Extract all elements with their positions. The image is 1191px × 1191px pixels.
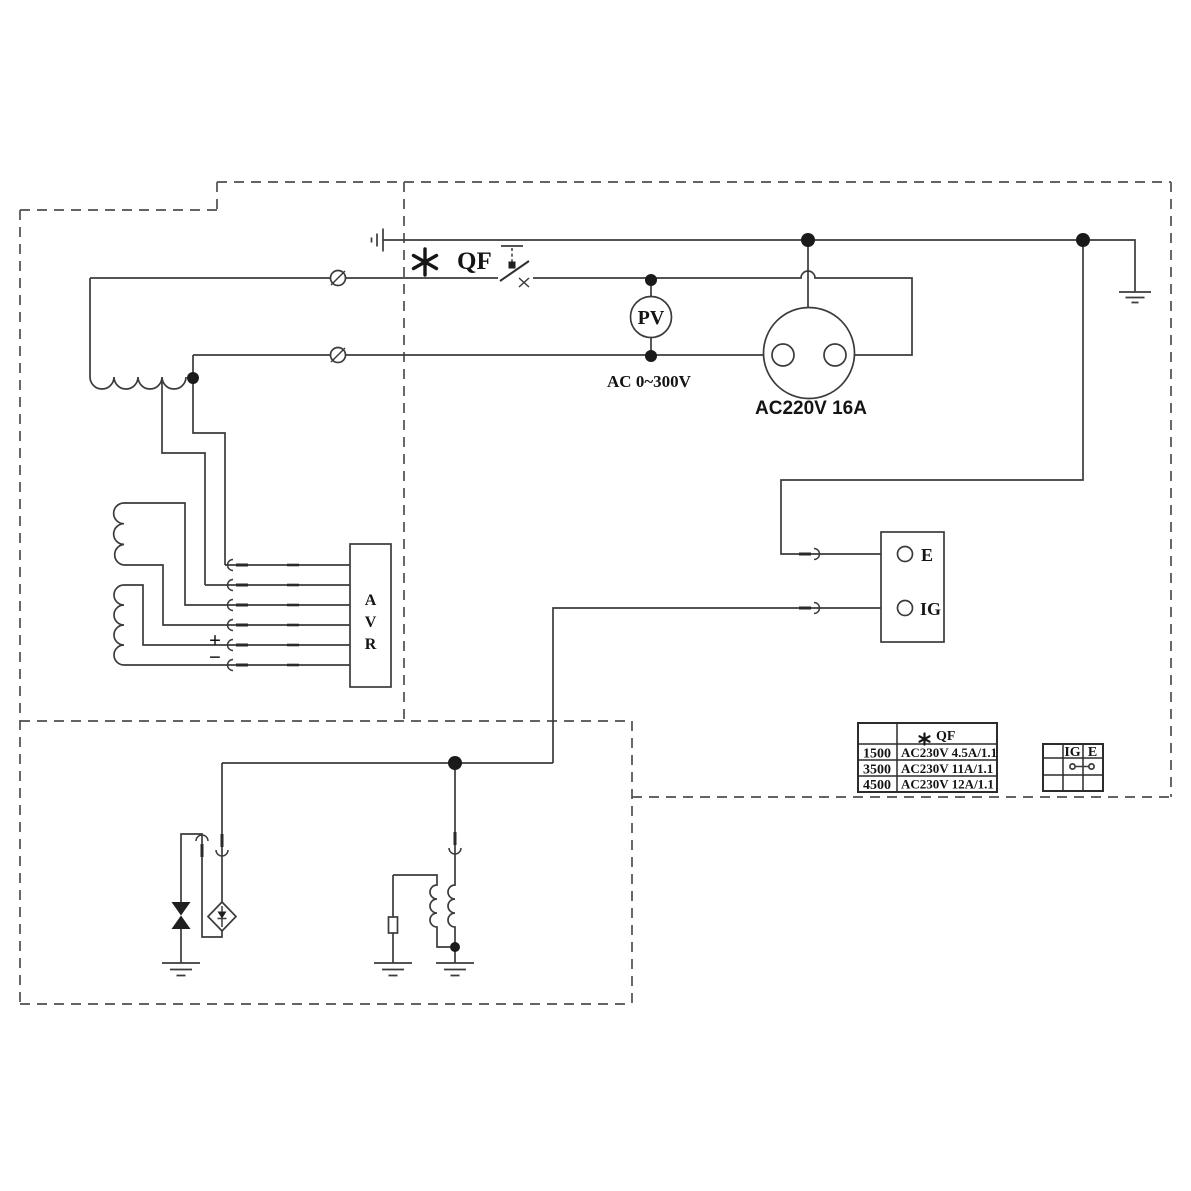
connector-icon (196, 549, 820, 858)
qf-table-spec: AC230V 4.5A/1.1 (901, 745, 997, 760)
ground-icon (372, 229, 384, 252)
voltmeter-label: PV (638, 307, 665, 329)
qf-table-model: 1500 (863, 747, 891, 762)
terminal-block (881, 532, 944, 642)
qf-table-spec: AC230V 12A/1.1 (901, 777, 994, 792)
qf-table-model: 4500 (863, 778, 891, 793)
breaker-label: QF (457, 248, 492, 275)
schematic-canvas: QF PV AC 0~300V AC220V 16A E IG A V R + … (0, 0, 1191, 1191)
avr-label: V (365, 614, 377, 631)
ground-icon (374, 963, 412, 976)
avr-label: R (365, 636, 377, 653)
charge-diode-branch (162, 763, 236, 976)
main-winding (90, 278, 186, 389)
ig-e-table-header-e: E (1088, 745, 1097, 760)
voltmeter-range-label: AC 0~300V (607, 372, 692, 391)
ground-icon (436, 963, 474, 976)
ig-e-table-header-ig: IG (1064, 745, 1080, 760)
qf-table-model: 3500 (863, 763, 891, 778)
power-socket (764, 308, 855, 399)
breaker-qf (500, 246, 529, 287)
qf-table-header: QF (936, 729, 955, 744)
terminal-ig-label: IG (920, 599, 941, 619)
spark-plug-resistor (389, 917, 398, 933)
ground-icon (1119, 292, 1151, 303)
polarity-minus-label: − (209, 645, 221, 669)
junction-dot (187, 233, 1090, 952)
terminal-circle (331, 271, 346, 286)
asterisk-icon (414, 249, 437, 275)
ignition-coil (389, 763, 456, 963)
avr-label: A (365, 592, 377, 609)
excitation-winding-upper (114, 503, 350, 625)
terminal-circle (331, 348, 346, 363)
socket-label: AC220V 16A (755, 398, 867, 419)
qf-table-spec: AC230V 11A/1.1 (901, 761, 993, 776)
terminal-e-label: E (921, 545, 933, 565)
circuit-wiring (90, 229, 1151, 976)
ground-icon (162, 963, 200, 976)
dashed-enclosure (20, 182, 1171, 1004)
surge-suppressor (172, 902, 191, 929)
